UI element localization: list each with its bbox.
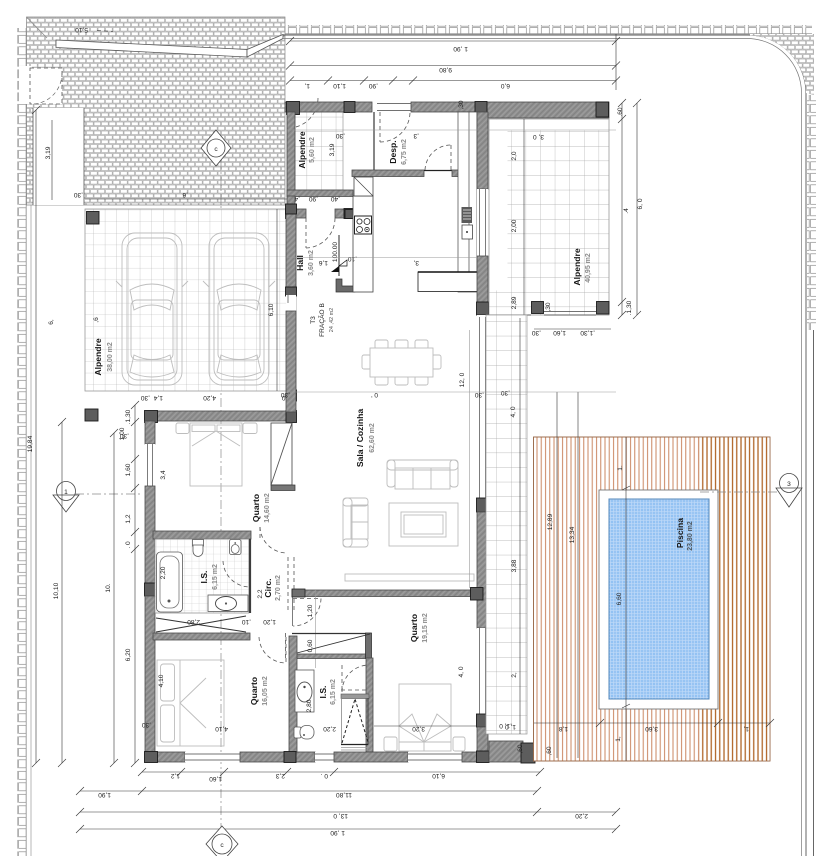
svg-text:1.: 1. (617, 465, 624, 471)
svg-text:12, 0: 12, 0 (459, 372, 466, 387)
svg-text:Quarto: Quarto (251, 494, 261, 522)
svg-text:10,10: 10,10 (53, 582, 60, 599)
svg-text:T3: T3 (310, 316, 317, 324)
svg-text:40,95 m2: 40,95 m2 (585, 253, 592, 283)
svg-text:2,0: 2,0 (511, 151, 518, 160)
svg-text:2,00: 2,00 (511, 219, 518, 232)
svg-text:9,80: 9,80 (439, 66, 452, 73)
svg-text:Sala / Cozinha: Sala / Cozinha (355, 409, 365, 467)
svg-text:1 ,90: 1 ,90 (330, 829, 345, 836)
svg-text:2,20: 2,20 (575, 812, 588, 819)
svg-text:I.S.: I.S. (199, 571, 209, 584)
svg-text:2,80: 2,80 (306, 699, 313, 712)
svg-text:2,80: 2,80 (187, 618, 200, 625)
svg-text:24 ,42 m2: 24 ,42 m2 (329, 308, 335, 332)
svg-text:6,: 6, (48, 319, 55, 325)
svg-text:19,84: 19,84 (27, 435, 34, 452)
svg-text:Alpendre: Alpendre (297, 131, 307, 168)
svg-text:1,2: 1,2 (171, 772, 180, 779)
svg-text:3,88: 3,88 (511, 559, 518, 572)
svg-text:2,20: 2,20 (323, 725, 336, 732)
svg-text:4,20: 4,20 (203, 394, 216, 401)
svg-text:,30: ,30 (74, 191, 83, 198)
svg-text:6,10: 6,10 (432, 772, 445, 779)
svg-text:6,15 m2: 6,15 m2 (330, 679, 337, 705)
svg-text:38,00 m2: 38,00 m2 (107, 342, 114, 372)
svg-text:3,19: 3,19 (329, 143, 336, 156)
svg-text:,90: ,90 (369, 82, 378, 89)
svg-text:,3: ,3 (413, 132, 419, 139)
svg-text:1,20: 1,20 (263, 618, 276, 625)
svg-text:,30: ,30 (458, 100, 465, 109)
svg-text:.1,30: .1,30 (125, 409, 132, 424)
svg-text:2,: 2, (511, 672, 518, 678)
svg-text:1 ,90: 1 ,90 (453, 45, 468, 52)
svg-text:,30: ,30 (336, 132, 345, 139)
svg-text:1,60: 1,60 (553, 329, 566, 336)
svg-text:1,60: 1,60 (125, 463, 132, 476)
svg-text:1,4: 1,4 (154, 394, 163, 401)
svg-text:6,60: 6,60 (616, 592, 623, 605)
svg-text:2,3: 2,3 (276, 772, 285, 779)
svg-text:1,: 1, (615, 736, 622, 742)
svg-text:FRAÇÃO B: FRAÇÃO B (317, 303, 326, 337)
svg-text:100.00: 100.00 (332, 242, 339, 263)
svg-text:13,34: 13,34 (569, 526, 576, 543)
svg-text:23,80 m2: 23,80 m2 (687, 521, 694, 551)
svg-text:,30: ,30 (501, 389, 510, 396)
svg-text:1,: 1, (304, 82, 310, 89)
svg-text:Desp.: Desp. (388, 140, 398, 163)
svg-text:3: 3 (787, 481, 791, 488)
svg-text:2,89: 2,89 (511, 296, 518, 309)
svg-text:13, 0: 13, 0 (333, 812, 348, 819)
svg-text:11,80: 11,80 (336, 791, 352, 798)
svg-text:1: 1 (64, 489, 68, 496)
svg-text:,10: ,10 (242, 618, 251, 625)
svg-text:1,00: 1,00 (119, 427, 126, 440)
svg-text:2,2: 2,2 (257, 589, 264, 598)
svg-text:Alpendre: Alpendre (93, 338, 103, 375)
svg-text:1,20: 1,20 (307, 604, 314, 617)
svg-text:,90: ,90 (309, 195, 318, 202)
svg-text:14,60 m2: 14,60 m2 (264, 493, 271, 523)
svg-text:1,60: 1,60 (209, 775, 222, 782)
svg-text:3,19: 3,19 (45, 146, 52, 159)
svg-text:1,10: 1,10 (333, 82, 346, 89)
svg-text:,60: ,60 (546, 746, 553, 755)
svg-text:1,8: 1,8 (559, 725, 568, 732)
svg-text:6, 0: 6, 0 (637, 198, 644, 209)
svg-text:,30: ,30 (532, 329, 541, 336)
svg-text:,40: ,40 (331, 195, 340, 202)
svg-text:3,60 m2: 3,60 m2 (308, 250, 315, 276)
svg-text:2,20: 2,20 (160, 566, 167, 579)
svg-text:Quarto: Quarto (409, 614, 419, 642)
svg-text:Alpendre: Alpendre (572, 248, 582, 285)
svg-text:6,75 m2: 6,75 m2 (401, 139, 408, 165)
svg-text:,6: ,6 (182, 191, 188, 198)
svg-text:3,20: 3,20 (412, 725, 425, 732)
svg-text:,30: ,30 (475, 391, 484, 398)
svg-text:0 .: 0 . (321, 772, 328, 779)
svg-text:Piscina: Piscina (675, 518, 685, 548)
svg-text:5,10: 5,10 (75, 26, 88, 33)
svg-text:19,15 m2: 19,15 m2 (422, 613, 429, 643)
svg-text:6,20: 6,20 (125, 648, 132, 661)
svg-text:.1,30: .1,30 (626, 300, 633, 315)
svg-text:,30: ,30 (141, 394, 150, 401)
svg-text:3, 0: 3, 0 (533, 133, 544, 140)
svg-text:3,60: 3,60 (645, 725, 658, 732)
svg-text:0 ': 0 ' (371, 391, 378, 398)
svg-text:4, 0: 4, 0 (510, 406, 517, 417)
svg-text:62,60 m2: 62,60 m2 (369, 423, 376, 453)
svg-text:.4: .4 (623, 208, 630, 214)
svg-text:1,90: 1,90 (98, 791, 111, 798)
svg-text:1,6: 1,6 (319, 259, 328, 266)
svg-text:4,10: 4,10 (158, 674, 165, 687)
svg-text:6,15 m2: 6,15 m2 (212, 564, 219, 590)
svg-text:Circ.: Circ. (263, 578, 273, 597)
svg-text:3,4: 3,4 (160, 470, 167, 479)
svg-text:4, 0: 4, 0 (458, 666, 465, 677)
svg-text:,10: ,10 (348, 255, 357, 262)
svg-text:2,70 m2: 2,70 m2 (275, 575, 282, 601)
svg-text:. 0: . 0 (125, 541, 132, 549)
svg-text:1,2: 1,2 (125, 514, 132, 523)
svg-text:16,05 m2: 16,05 m2 (262, 676, 269, 706)
svg-text:5,60 m2: 5,60 m2 (309, 137, 316, 163)
svg-text:6,0: 6,0 (501, 82, 510, 89)
svg-text:,60: ,60 (517, 744, 524, 753)
svg-text:12,89: 12,89 (547, 513, 554, 530)
svg-text:3,: 3, (413, 259, 419, 266)
svg-text:10.: 10. (105, 583, 112, 592)
svg-text:,6: ,6 (93, 317, 100, 323)
svg-text:,1,30: ,1,30 (580, 329, 595, 336)
svg-text:6,10: 6,10 (268, 303, 275, 316)
svg-text:1,: 1, (743, 725, 749, 732)
svg-text:,30: ,30 (281, 391, 290, 398)
svg-text:,1, 0: ,1, 0 (499, 722, 512, 729)
svg-text:Quarto: Quarto (249, 677, 259, 705)
svg-text:,30: ,30 (142, 721, 151, 728)
svg-text:4,10: 4,10 (215, 725, 228, 732)
svg-text:,30: ,30 (545, 302, 552, 311)
svg-text:.60: .60 (617, 107, 624, 116)
svg-text:0,60: 0,60 (307, 639, 314, 652)
svg-text:I.S.: I.S. (318, 686, 328, 699)
